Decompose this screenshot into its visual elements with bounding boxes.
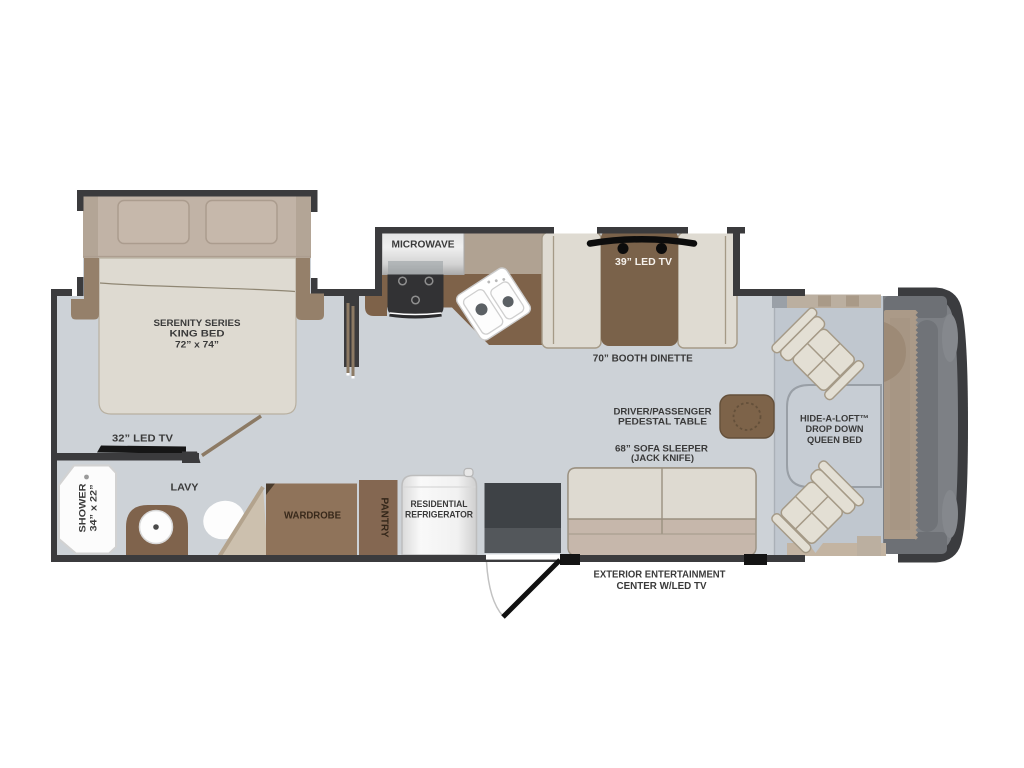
svg-text:(JACK KNIFE): (JACK KNIFE) bbox=[631, 453, 694, 464]
svg-text:EXTERIOR ENTERTAINMENT: EXTERIOR ENTERTAINMENT bbox=[594, 568, 727, 580]
svg-text:HIDE-A-LOFT™: HIDE-A-LOFT™ bbox=[800, 414, 869, 424]
svg-text:PEDESTAL TABLE: PEDESTAL TABLE bbox=[618, 416, 707, 426]
svg-text:39” LED TV: 39” LED TV bbox=[615, 257, 672, 268]
svg-text:REFRIGERATOR: REFRIGERATOR bbox=[405, 510, 473, 520]
svg-text:QUEEN BED: QUEEN BED bbox=[807, 435, 862, 445]
svg-text:WARDROBE: WARDROBE bbox=[284, 511, 341, 522]
svg-text:70” BOOTH DINETTE: 70” BOOTH DINETTE bbox=[593, 352, 693, 364]
svg-text:LAVY: LAVY bbox=[171, 483, 199, 494]
svg-text:34” x 22”: 34” x 22” bbox=[89, 485, 99, 532]
svg-text:MICROWAVE: MICROWAVE bbox=[392, 240, 455, 251]
svg-text:32” LED TV: 32” LED TV bbox=[112, 434, 173, 445]
svg-text:PANTRY: PANTRY bbox=[379, 498, 390, 538]
svg-text:SERENITY SERIES: SERENITY SERIES bbox=[154, 318, 241, 328]
svg-text:KING BED: KING BED bbox=[170, 329, 226, 339]
svg-text:DROP DOWN: DROP DOWN bbox=[806, 424, 864, 434]
svg-text:SHOWER: SHOWER bbox=[78, 483, 88, 533]
svg-text:72” x 74”: 72” x 74” bbox=[175, 339, 219, 349]
svg-text:DRIVER/PASSENGER: DRIVER/PASSENGER bbox=[614, 407, 712, 417]
svg-text:RESIDENTIAL: RESIDENTIAL bbox=[411, 499, 468, 509]
svg-text:CENTER W/LED TV: CENTER W/LED TV bbox=[617, 580, 707, 592]
